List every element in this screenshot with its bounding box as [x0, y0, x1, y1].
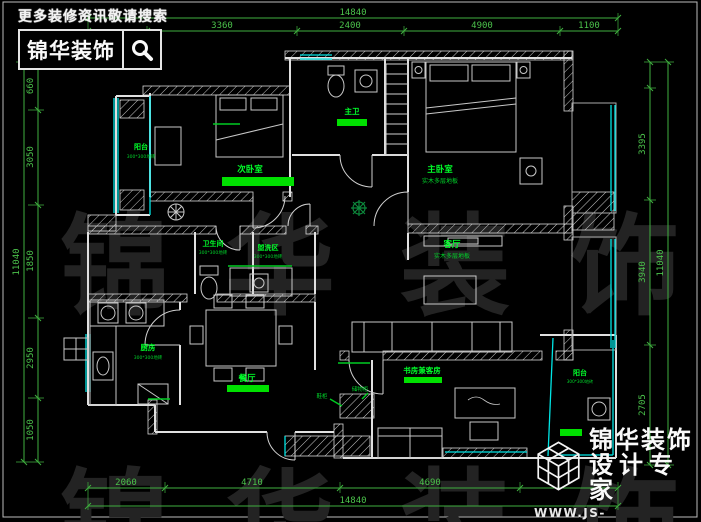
room-label-bathroom: 卫生间	[203, 239, 224, 248]
logo-cube-icon	[534, 438, 583, 494]
dim-left-seg: 3050	[26, 146, 36, 168]
room-note-living: 实木多层地板	[434, 252, 470, 260]
dim-right-seg: 3395	[638, 133, 648, 155]
footer-logo-text: 锦华装饰	[589, 428, 694, 453]
dim-bottom-seg: 4690	[419, 478, 441, 488]
room-label-wash: 盥洗区	[258, 243, 279, 252]
room-label-balcony-right: 阳台	[573, 368, 587, 377]
room-label-master-bath: 主卫	[345, 106, 360, 116]
highlight-bar-dining	[227, 385, 269, 392]
dim-right-seg: 2705	[638, 394, 648, 416]
dim-left-total: 11040	[12, 248, 22, 275]
master-bath-door	[340, 155, 372, 187]
highlight-bar-bedroom2	[222, 177, 294, 186]
watermark-char: 华	[225, 458, 335, 522]
dim-right-total: 11040	[656, 249, 666, 276]
study-window-sill	[443, 448, 527, 458]
room-label-bedroom2: 次卧室	[237, 164, 263, 175]
room-labels: 阳台 300*300地砖 次卧室 主卫 主卧室 实木多层地板 客厅 实木多层地板…	[127, 106, 593, 436]
dim-top-total: 14840	[339, 8, 366, 18]
dim-left-seg: 660	[26, 78, 36, 94]
room-label-living: 客厅	[442, 239, 461, 250]
brand-header: 更多装修资讯敬请搜索 锦华装饰	[18, 6, 168, 70]
dim-left-seg: 2950	[26, 347, 36, 369]
room-note-balcony-right: 300*300地砖	[567, 378, 593, 385]
label-storage: 储物柜	[352, 385, 369, 393]
bed-master	[412, 62, 530, 152]
room-label-kitchen: 厨房	[141, 342, 156, 352]
brand-logo-box: 锦华装饰	[18, 29, 162, 70]
ceiling-fan	[168, 204, 184, 220]
dim-bottom-seg: 2060	[115, 478, 137, 488]
study-sofa	[378, 428, 442, 458]
dim-left-seg: 1050	[26, 419, 36, 441]
basin-master	[355, 70, 377, 92]
dim-bottom-total: 14840	[339, 496, 366, 506]
ac-platform	[572, 192, 614, 230]
dresser-master	[520, 158, 542, 184]
room-label-dining: 餐厅	[237, 373, 256, 384]
dim-top-seg: 2400	[339, 21, 361, 31]
balcony-planter	[120, 190, 144, 210]
label-shoe-cabinet: 鞋柜	[316, 392, 328, 400]
plant	[351, 200, 367, 216]
room-note-bathroom: 300*300地砖	[199, 249, 228, 256]
study-desk	[455, 388, 515, 440]
dim-right-seg: 3940	[638, 261, 648, 283]
bed-secondary	[216, 95, 283, 157]
room-note-kitchen: 300*300地砖	[134, 354, 163, 361]
brand-footer: 锦华装饰 设计专家 WWW.JS-JINHUA.COM	[534, 428, 694, 522]
balcony-planter	[120, 100, 144, 118]
washing-machine	[588, 398, 610, 420]
watermark-char: 装	[400, 203, 510, 331]
entry-porch	[285, 436, 370, 456]
footer-website: WWW.JS-JINHUA.COM	[534, 506, 694, 522]
room-label-study: 书房兼客房	[403, 365, 441, 375]
flue-duct	[64, 338, 88, 360]
dim-bottom-seg: 4710	[241, 478, 263, 488]
room-label-master-bedroom: 主卧室	[427, 164, 453, 175]
room-note-master-bedroom: 实木多层地板	[422, 177, 458, 185]
highlight-bar-study	[404, 377, 442, 383]
room-label-balcony-left: 阳台	[134, 142, 148, 151]
watermark-char: 锦	[60, 458, 170, 522]
dim-top-seg: 1100	[578, 21, 600, 31]
wardrobe	[386, 64, 408, 155]
toilet-master	[328, 66, 344, 97]
dim-left-seg: 1850	[26, 250, 36, 272]
footer-logo-subtitle: 设计专家	[589, 453, 694, 503]
brand-tagline: 更多装修资讯敬请搜索	[18, 6, 168, 26]
brand-logo-text: 锦华装饰	[20, 31, 122, 68]
dim-top-seg: 3360	[211, 21, 233, 31]
floorplan-screenshot: 锦 华 装 饰 锦 华 装 饰	[0, 0, 701, 522]
toilet	[200, 266, 218, 299]
dim-top-seg: 4900	[471, 21, 493, 31]
entry-cabinet	[340, 394, 374, 418]
room-note-balcony-left: 300*300地砖	[127, 153, 156, 160]
watermark-char: 华	[225, 203, 335, 331]
highlight-bar-master-bath	[337, 119, 367, 126]
search-icon	[122, 31, 160, 68]
watermark-char: 装	[400, 458, 510, 522]
desk-secondary	[155, 127, 181, 165]
room-note-wash: 300*300地砖	[254, 253, 283, 260]
